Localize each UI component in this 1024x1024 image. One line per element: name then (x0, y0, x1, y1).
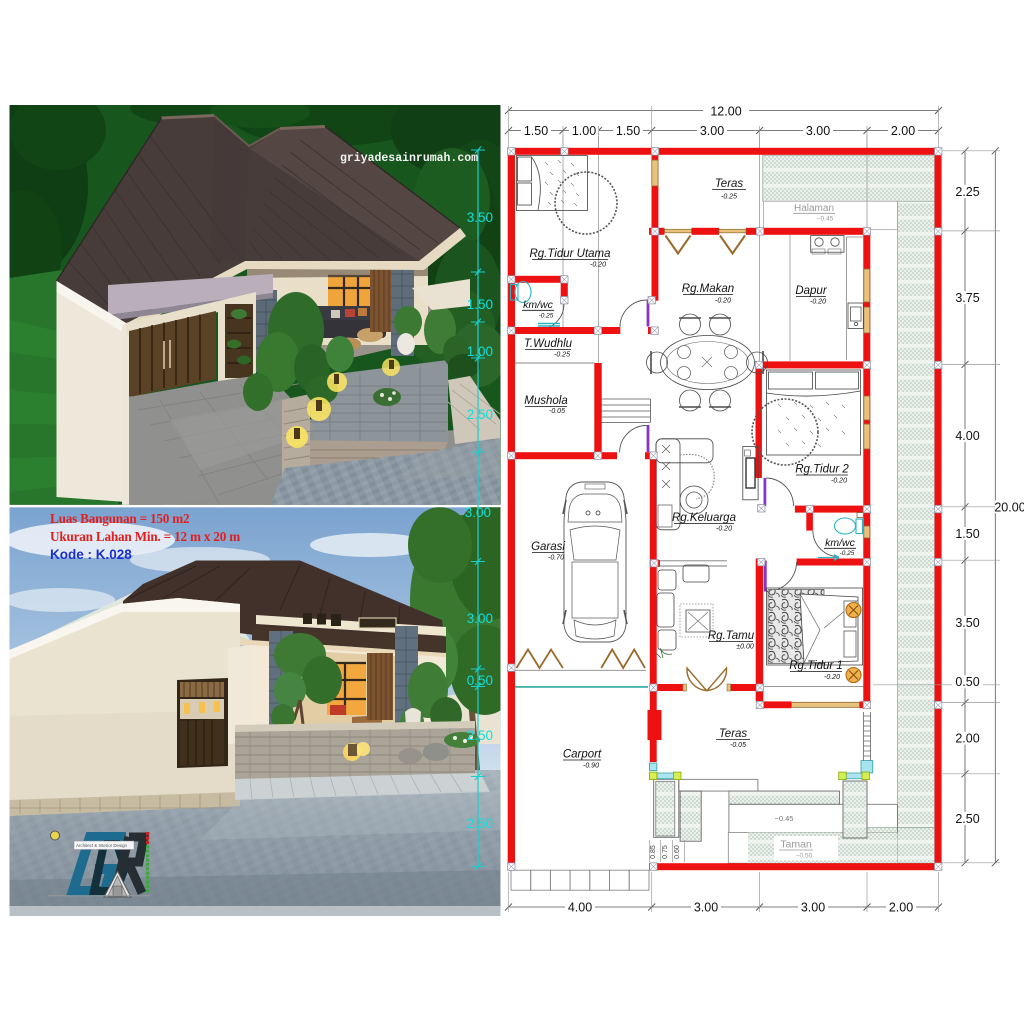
svg-text:−0.45: −0.45 (817, 216, 834, 223)
svg-text:2.00: 2.00 (955, 732, 979, 746)
svg-text:Kode : K.028: Kode : K.028 (50, 547, 132, 562)
svg-text:km/wc: km/wc (523, 299, 553, 311)
svg-text:1.50: 1.50 (955, 527, 979, 541)
svg-text:Architect & Interior Design: Architect & Interior Design (76, 843, 128, 848)
svg-text:-0.20: -0.20 (824, 674, 840, 681)
svg-text:Rg.Tidur 2: Rg.Tidur 2 (795, 464, 849, 476)
svg-text:-0.20: -0.20 (716, 526, 732, 533)
svg-text:griyadesainrumah.com: griyadesainrumah.com (340, 152, 478, 165)
svg-text:-0.05: -0.05 (730, 742, 746, 749)
svg-text:2.25: 2.25 (955, 185, 979, 199)
svg-text:2.50: 2.50 (467, 407, 493, 422)
svg-text:Ukuran Lahan Min. = 12 m x 20: Ukuran Lahan Min. = 12 m x 20 m (50, 529, 240, 544)
svg-text:Luas Bangunan = 150 m2: Luas Bangunan = 150 m2 (50, 511, 190, 526)
svg-text:-0.25: -0.25 (539, 313, 554, 320)
svg-text:Teras: Teras (715, 178, 744, 190)
svg-text:2.00: 2.00 (891, 124, 915, 138)
svg-text:T.Wudhlu: T.Wudhlu (524, 338, 573, 350)
svg-text:2.50: 2.50 (955, 812, 979, 826)
svg-text:Garasi: Garasi (531, 541, 565, 553)
svg-text:3.50: 3.50 (955, 616, 979, 630)
svg-text:-0.70: -0.70 (548, 555, 564, 562)
svg-text:-0.25: -0.25 (840, 550, 855, 557)
svg-text:2.50: 2.50 (467, 816, 493, 831)
svg-text:Dapur: Dapur (795, 285, 827, 297)
svg-text:3.00: 3.00 (700, 124, 724, 138)
svg-text:3.75: 3.75 (955, 291, 979, 305)
svg-text:0.85: 0.85 (650, 845, 657, 859)
svg-text:1.50: 1.50 (467, 297, 493, 312)
svg-text:1.50: 1.50 (524, 124, 548, 138)
svg-text:-0.90: -0.90 (583, 763, 599, 770)
svg-text:Rg.Keluarga: Rg.Keluarga (672, 512, 736, 524)
svg-text:2.50: 2.50 (467, 728, 493, 743)
svg-text:0.75: 0.75 (662, 845, 669, 859)
svg-text:0.50: 0.50 (955, 675, 979, 689)
svg-text:3.00: 3.00 (465, 505, 491, 520)
svg-text:2.00: 2.00 (889, 900, 913, 914)
svg-text:-0.25: -0.25 (721, 194, 737, 201)
svg-text:3.00: 3.00 (694, 900, 718, 914)
svg-text:-0.20: -0.20 (715, 298, 731, 305)
svg-text:1.00: 1.00 (467, 344, 493, 359)
svg-text:1.00: 1.00 (572, 124, 596, 138)
svg-text:20.00: 20.00 (994, 500, 1024, 514)
svg-text:12.00: 12.00 (710, 105, 741, 119)
svg-text:Rg.Makan: Rg.Makan (682, 283, 734, 295)
svg-text:−0.45: −0.45 (775, 814, 794, 823)
svg-text:4.00: 4.00 (568, 900, 592, 914)
svg-text:Rg.Tamu: Rg.Tamu (708, 630, 755, 642)
svg-text:−0.50: −0.50 (796, 853, 813, 860)
svg-text:4.00: 4.00 (955, 429, 979, 443)
svg-text:-0.20: -0.20 (590, 262, 606, 269)
svg-text:Carport: Carport (563, 749, 602, 761)
svg-text:3.50: 3.50 (467, 210, 493, 225)
svg-text:-0.20: -0.20 (810, 299, 826, 306)
svg-text:-0.20: -0.20 (831, 478, 847, 485)
svg-text:3.00: 3.00 (801, 900, 825, 914)
svg-text:Rg.Tidur Utama: Rg.Tidur Utama (529, 248, 610, 260)
svg-text:Halaman: Halaman (794, 203, 834, 214)
svg-text:±0.00: ±0.00 (736, 644, 754, 651)
svg-text:Rg.Tidur 1: Rg.Tidur 1 (789, 660, 843, 672)
svg-text:Mushola: Mushola (524, 395, 567, 407)
svg-text:0.50: 0.50 (467, 673, 493, 688)
svg-text:1.50: 1.50 (616, 124, 640, 138)
svg-text:-0.25: -0.25 (554, 352, 570, 359)
svg-text:3.00: 3.00 (467, 611, 493, 626)
svg-text:3.00: 3.00 (806, 124, 830, 138)
svg-text:km/wc: km/wc (825, 537, 855, 549)
svg-text:0.60: 0.60 (674, 845, 681, 859)
svg-text:-0.05: -0.05 (549, 408, 565, 415)
svg-text:Teras: Teras (719, 728, 748, 740)
svg-text:Taman: Taman (780, 839, 812, 851)
